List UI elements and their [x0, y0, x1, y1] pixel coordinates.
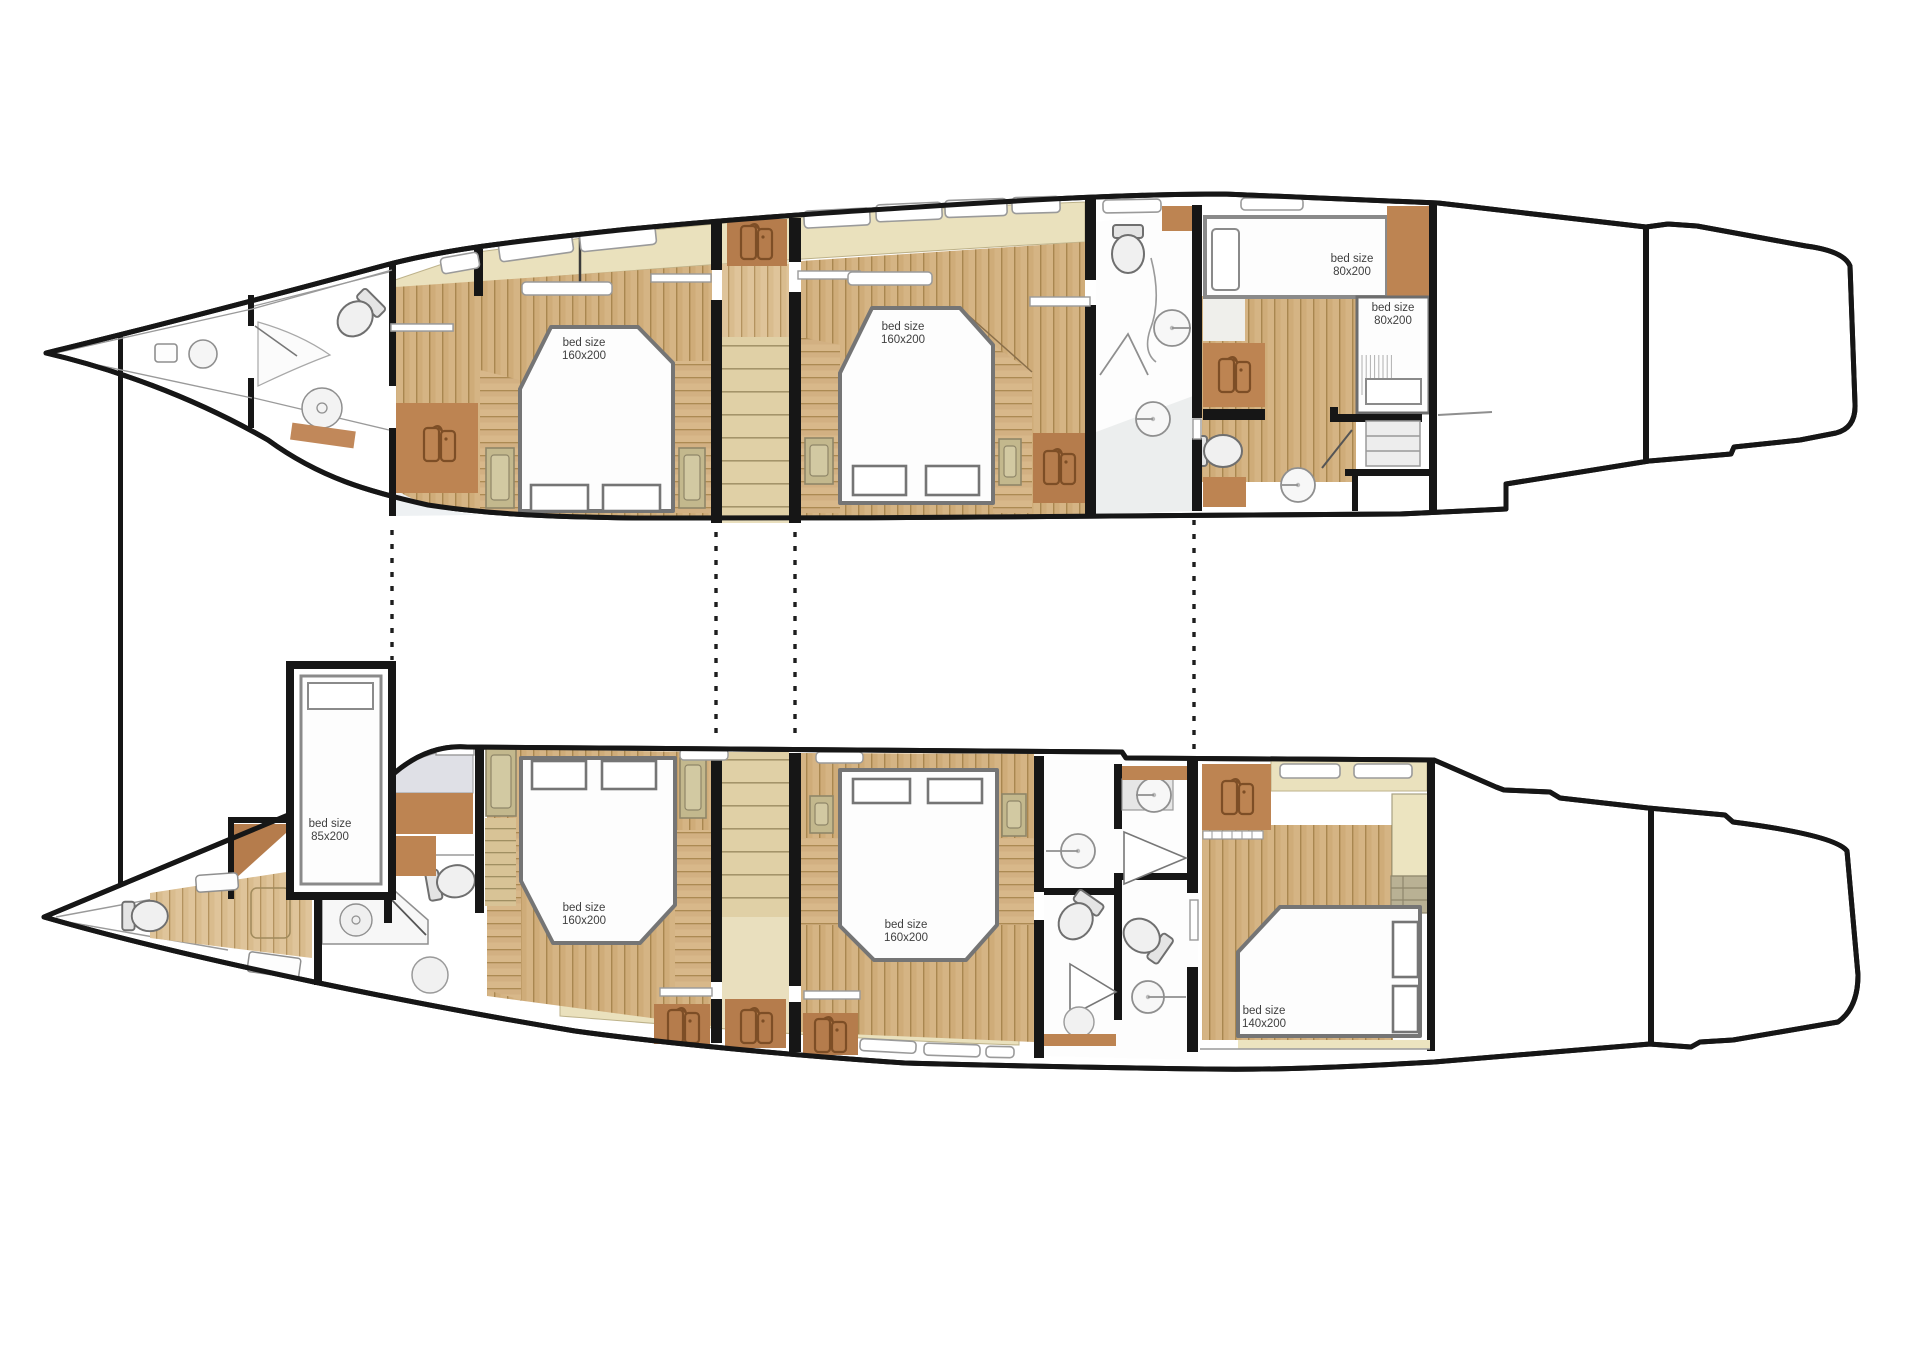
- svg-text:140x200: 140x200: [1242, 1018, 1286, 1030]
- svg-text:160x200: 160x200: [884, 932, 928, 944]
- svg-text:160x200: 160x200: [562, 350, 606, 362]
- svg-text:bed size: bed size: [309, 818, 352, 830]
- svg-text:bed size: bed size: [563, 337, 606, 349]
- svg-text:80x200: 80x200: [1374, 315, 1412, 327]
- svg-text:160x200: 160x200: [562, 915, 606, 927]
- svg-text:bed size: bed size: [885, 919, 928, 931]
- svg-text:bed size: bed size: [563, 902, 606, 914]
- svg-text:bed size: bed size: [882, 321, 925, 333]
- svg-text:bed size: bed size: [1331, 253, 1374, 265]
- svg-text:80x200: 80x200: [1333, 266, 1371, 278]
- svg-text:160x200: 160x200: [881, 334, 925, 346]
- svg-text:85x200: 85x200: [311, 831, 349, 843]
- svg-text:bed size: bed size: [1372, 302, 1415, 314]
- svg-text:bed size: bed size: [1243, 1005, 1286, 1017]
